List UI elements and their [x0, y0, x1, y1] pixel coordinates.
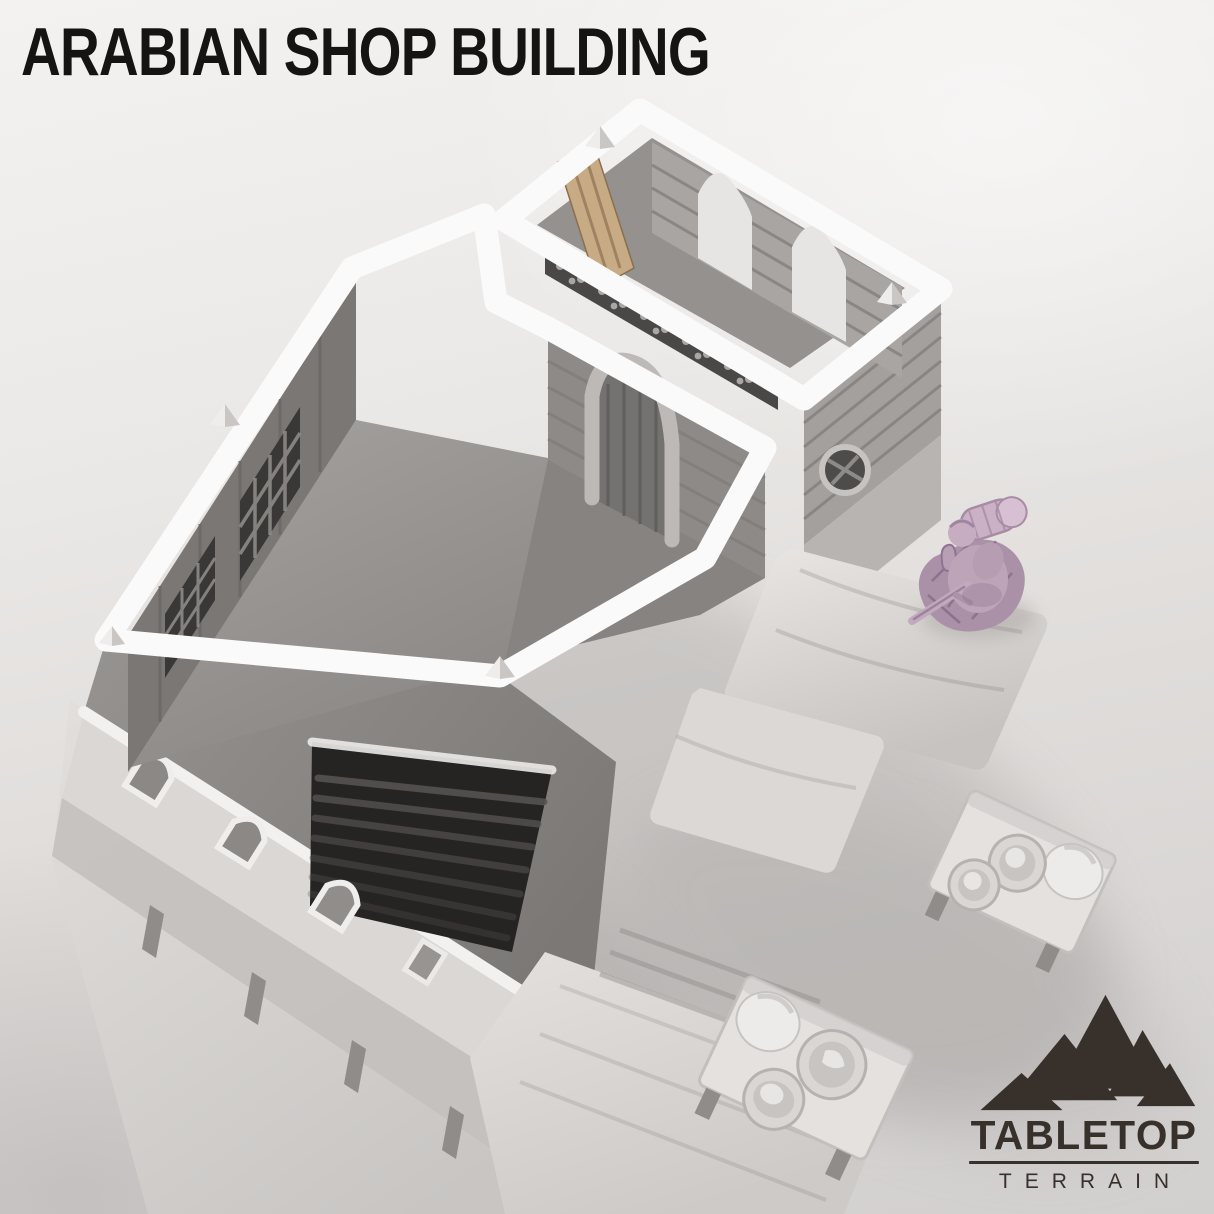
brand-tagline: TERRAIN [968, 1171, 1200, 1192]
brand-logo: TABLETOP TERRAIN [968, 991, 1200, 1192]
mountain-icon [968, 991, 1200, 1113]
brand-name: TABLETOP [969, 1115, 1199, 1164]
product-title: ARABIAN SHOP BUILDING [21, 14, 710, 90]
round-window [822, 447, 868, 493]
corner-pyramid [210, 404, 240, 427]
product-hero: ARABIAN SHOP BUILDING [0, 0, 1214, 1214]
